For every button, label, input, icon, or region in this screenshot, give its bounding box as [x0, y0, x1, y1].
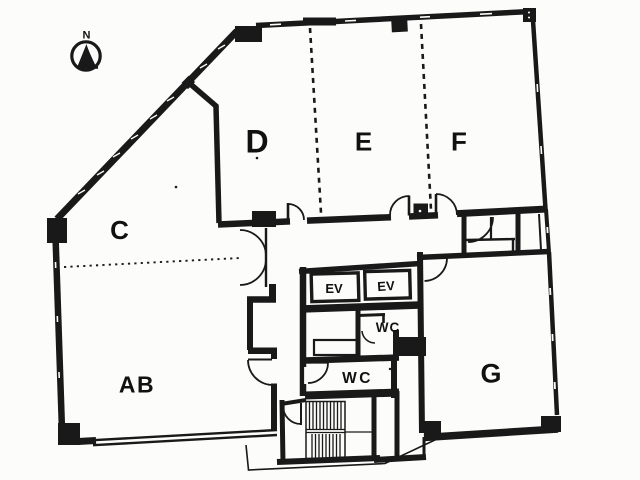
- svg-text:E: E: [355, 127, 372, 157]
- svg-text:F: F: [451, 127, 467, 157]
- svg-text:AB: AB: [119, 372, 155, 398]
- svg-text:WC: WC: [376, 320, 401, 335]
- svg-text:WC: WC: [342, 370, 373, 387]
- svg-text:N: N: [83, 30, 91, 42]
- svg-text:EV: EV: [325, 281, 343, 296]
- svg-text:EV: EV: [377, 278, 396, 294]
- svg-text:G: G: [480, 359, 501, 389]
- svg-text:D: D: [245, 124, 268, 160]
- svg-text:C: C: [110, 215, 129, 245]
